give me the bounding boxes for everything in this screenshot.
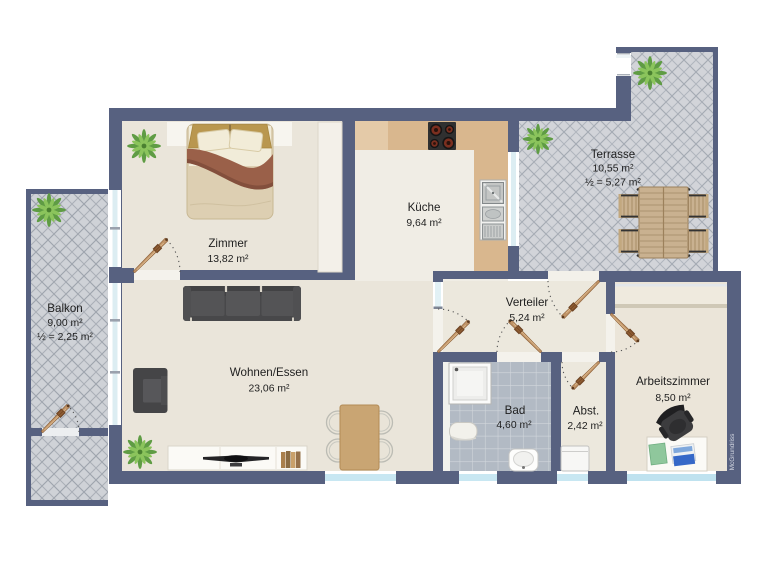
svg-text:Terrasse: Terrasse [591,148,635,161]
svg-text:8,50 m²: 8,50 m² [655,393,691,404]
svg-text:9,00 m²: 9,00 m² [47,318,83,329]
svg-text:5,24 m²: 5,24 m² [509,313,545,324]
svg-text:9,64 m²: 9,64 m² [406,218,442,229]
svg-text:Balkon: Balkon [47,302,82,315]
svg-text:McGrundriss: McGrundriss [729,433,736,471]
svg-text:13,82 m²: 13,82 m² [207,254,249,265]
svg-text:½ = 2,25 m²: ½ = 2,25 m² [37,332,93,343]
svg-text:Wohnen/Essen: Wohnen/Essen [230,366,308,379]
svg-text:Zimmer: Zimmer [208,237,247,250]
svg-text:Verteiler: Verteiler [506,296,549,309]
svg-text:Bad: Bad [505,404,526,417]
svg-text:10,55 m²: 10,55 m² [592,164,634,175]
svg-text:½ = 5,27 m²: ½ = 5,27 m² [585,178,641,189]
svg-text:Arbeitszimmer: Arbeitszimmer [636,375,710,388]
svg-text:Abst.: Abst. [573,405,599,418]
svg-text:2,42 m²: 2,42 m² [567,421,603,432]
svg-text:4,60 m²: 4,60 m² [496,420,532,431]
svg-text:Küche: Küche [408,201,441,214]
svg-text:23,06 m²: 23,06 m² [248,384,290,395]
